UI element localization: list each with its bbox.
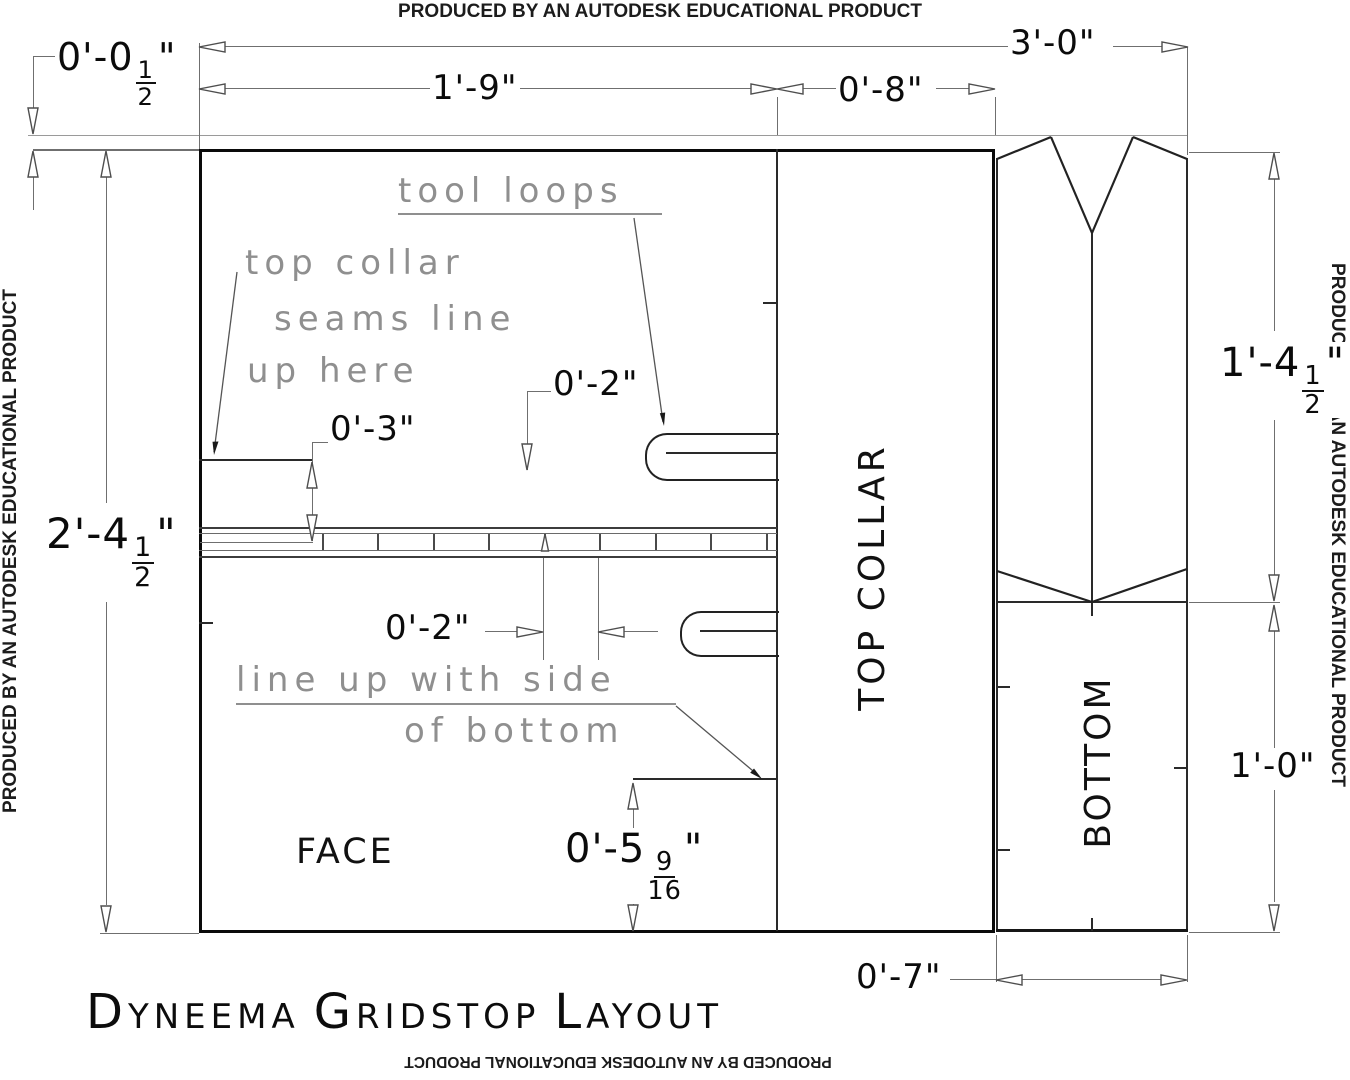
- bottom-panel-center-line: [1091, 233, 1093, 602]
- fraction-numerator: 1: [1302, 364, 1323, 392]
- dim-value: 0'-5: [565, 826, 645, 872]
- title-word: Layout: [554, 984, 723, 1040]
- note-align-line2: of bottom: [404, 714, 625, 748]
- dim-value: 0'-0: [57, 35, 134, 79]
- ext-line: [1189, 602, 1280, 603]
- dim-bottom-width: 0'-7": [854, 960, 944, 996]
- tool-loop-upper-slot-line: [666, 452, 777, 454]
- fraction: 12: [1302, 364, 1323, 418]
- ext-line: [598, 558, 599, 660]
- ext-line: [1189, 152, 1280, 153]
- dim-unit: ": [158, 35, 176, 79]
- match-tick: [1174, 767, 1188, 769]
- bottom-align-step-line: [633, 778, 777, 780]
- dim-unit: ": [1326, 340, 1345, 386]
- dim-line: [1274, 631, 1275, 748]
- watermark-right: PRODUCED BY AN AUTODESK EDUCATIONAL PROD…: [1326, 205, 1348, 845]
- ext-line-collar-right: [995, 97, 996, 135]
- face-collar-divider-line: [776, 149, 778, 931]
- dim-value: 2'-4: [46, 509, 130, 558]
- dim-callout-line: [527, 391, 528, 470]
- dim-unit: ": [156, 509, 176, 558]
- bottom-panel-label: BOTTOM: [1077, 687, 1119, 837]
- title-word: Gridstop: [314, 984, 541, 1040]
- strip-tick: [322, 534, 324, 550]
- strip-tick: [766, 534, 768, 550]
- note-tool-loops: tool loops: [398, 174, 624, 208]
- dim-line: [106, 602, 107, 905]
- dim-line: [1022, 979, 1161, 980]
- ext-line-strip-center: [200, 542, 313, 543]
- tool-loop-upper: [645, 433, 779, 481]
- dim-line: [1274, 420, 1275, 575]
- ext-line-cut-top: [28, 135, 1188, 136]
- dim-line: [312, 442, 313, 541]
- ext-line-divider: [777, 97, 778, 135]
- match-tick: [1091, 918, 1093, 931]
- tool-loop-lower-slot-line: [700, 630, 777, 632]
- ext-line: [1187, 935, 1188, 982]
- fraction-numerator: 1: [136, 58, 156, 84]
- dim-line: [106, 177, 107, 503]
- note-align-line1: line up with side: [236, 663, 617, 697]
- strip-top-edge: [199, 527, 777, 529]
- strip-tick: [488, 534, 490, 550]
- note-tool-loops-underline: [398, 213, 662, 215]
- strip-tick: [433, 534, 435, 550]
- ext-line: [543, 558, 544, 660]
- dim-bottom-upper-height: 1'-412": [1218, 342, 1347, 418]
- note-align-underline: [236, 703, 676, 705]
- fraction-denominator: 2: [1304, 392, 1321, 419]
- dim-line: [510, 88, 751, 89]
- title-word: Dyneema: [86, 984, 300, 1040]
- match-tick: [996, 849, 1010, 851]
- fraction-denominator: 2: [134, 564, 152, 592]
- strip-tick: [710, 534, 712, 550]
- dim-grid-spacing: 0'-2": [383, 611, 473, 647]
- dim-seam-offset: 0'-3": [328, 412, 418, 448]
- dim-bottom-lower-height: 1'-0": [1228, 749, 1318, 785]
- watermark-top: PRODUCED BY AN AUTODESK EDUCATIONAL PROD…: [340, 1, 980, 23]
- strip-tick: [377, 534, 379, 550]
- fraction-denominator: 2: [138, 84, 154, 109]
- fraction-numerator: 9: [654, 850, 675, 878]
- ext-line: [996, 935, 997, 982]
- ext-line: [1189, 932, 1280, 933]
- note-seam-line2: seams line: [274, 302, 516, 336]
- strip-tick: [544, 534, 546, 550]
- match-tick: [199, 622, 213, 624]
- dim-callout-line: [33, 56, 34, 108]
- dim-top-collar-width: 0'-8": [836, 73, 926, 109]
- ext-line-panel-bottom: [100, 933, 199, 934]
- match-tick: [996, 686, 1010, 688]
- ext-line-panel-top: [33, 149, 199, 151]
- dim-line: [950, 979, 996, 980]
- dim-face-width: 1'-9": [430, 71, 520, 107]
- top-collar-panel-label: TOP COLLAR: [851, 447, 893, 707]
- ext-line-right: [1187, 47, 1188, 155]
- fraction: 12: [136, 58, 156, 110]
- dim-overall-height: 2'-412": [44, 512, 179, 592]
- dim-unit: ": [684, 826, 703, 872]
- note-seam-line3: up here: [247, 354, 420, 388]
- tool-loop-lower: [680, 611, 779, 657]
- dim-line: [485, 631, 517, 632]
- fraction-numerator: 1: [132, 535, 154, 564]
- dim-line: [624, 631, 658, 632]
- bottom-panel-left-edge: [996, 158, 998, 931]
- dim-line: [225, 88, 430, 89]
- dim-line: [1274, 179, 1275, 331]
- seam-reference-line: [199, 459, 313, 461]
- watermark-left: PRODUCED BY AN AUTODESK EDUCATIONAL PROD…: [0, 231, 22, 871]
- watermark-bottom: PRODUCED BY AN AUTODESK EDUCATIONAL PROD…: [383, 1052, 853, 1070]
- note-seam-line1: top collar: [245, 246, 465, 280]
- bottom-panel-right-edge: [1186, 158, 1188, 931]
- fraction: 12: [132, 535, 154, 592]
- strip-bottom-edge: [199, 556, 777, 558]
- dim-overall-width: 3'-0": [1008, 26, 1098, 62]
- dim-tool-loop-offset: 0'-2": [551, 367, 641, 403]
- face-panel-label: FACE: [296, 832, 395, 872]
- dim-step-height: 0'-5916": [563, 828, 705, 904]
- dim-line: [1113, 46, 1162, 47]
- drawing-title: DyneemaGridstopLayout: [86, 984, 737, 1040]
- strip-tick: [655, 534, 657, 550]
- dim-line: [803, 88, 836, 89]
- match-tick: [1091, 602, 1093, 616]
- fraction-denominator: 16: [647, 878, 682, 905]
- dim-line: [936, 88, 969, 89]
- dim-seam-allowance: 0'-012": [55, 38, 178, 110]
- strip-inner-bottom-line: [199, 550, 777, 551]
- match-tick: [763, 302, 777, 304]
- strip-tick: [599, 534, 601, 550]
- ext-line-left: [199, 43, 200, 149]
- dim-line: [225, 46, 1008, 47]
- dim-value: 1'-4: [1220, 340, 1300, 386]
- cad-drawing-canvas: PRODUCED BY AN AUTODESK EDUCATIONAL PROD…: [0, 0, 1350, 1080]
- fraction: 916: [647, 850, 682, 904]
- dim-line: [1274, 790, 1275, 902]
- dim-callout-line: [33, 177, 34, 210]
